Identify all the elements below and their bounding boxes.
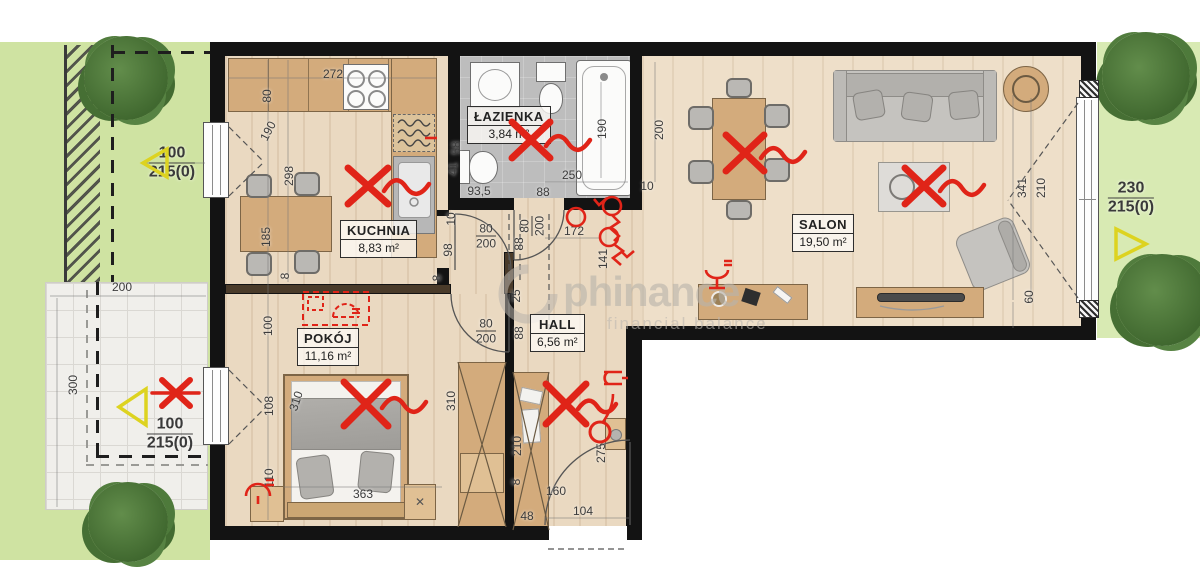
- room-area: 11,16 m²: [298, 348, 358, 365]
- insulation-hatch: [1079, 300, 1099, 318]
- wall-vestibule-stub: [437, 210, 449, 216]
- wall-bottom-stub: [630, 526, 642, 540]
- hanging-clothes: [521, 408, 541, 443]
- dining-table: [712, 98, 766, 200]
- nightstand-left: [250, 486, 284, 522]
- terrace-dashed-line-outer: [86, 464, 208, 466]
- kitchen-chair: [246, 174, 272, 198]
- bathtub-drain: [600, 73, 608, 81]
- wall-kitchen-bedroom: [225, 284, 451, 294]
- bathtub: [576, 60, 632, 196]
- dining-chair: [726, 78, 752, 98]
- room-label-kuchnia: KUCHNIA 8,83 m²: [340, 220, 417, 258]
- tree-mid-right: [1116, 254, 1200, 346]
- room-area: 8,83 m²: [341, 240, 416, 257]
- tree-bottom-left: [88, 482, 168, 562]
- tv-cabinet: [856, 287, 984, 318]
- dining-chair: [726, 200, 752, 220]
- wall-bedroom-hall: [505, 294, 514, 530]
- tree-top-left: [84, 36, 168, 120]
- sofa-pillow: [900, 91, 934, 123]
- wall-bath-right: [630, 56, 642, 210]
- terrace-dashed-line: [96, 455, 208, 458]
- bed-pillow: [357, 450, 395, 493]
- sofa-pillow: [948, 90, 981, 121]
- wall-bath-bottom-left: [448, 198, 514, 210]
- tv: [877, 293, 965, 302]
- wall-toilet-cistern: [536, 62, 566, 82]
- bathroom-vanity: [470, 62, 520, 108]
- dining-chair: [688, 106, 714, 130]
- hall-cabinet-knob: [610, 429, 622, 441]
- room-name: POKÓJ: [298, 329, 358, 348]
- bed-foot-bench: [287, 502, 405, 518]
- boundary-dashed-line: [111, 45, 114, 282]
- hanging-clothes: [519, 387, 543, 405]
- kitchen-chair: [246, 252, 272, 276]
- room-label-pokoj: POKÓJ 11,16 m²: [297, 328, 359, 366]
- wall-opening-stub: [504, 252, 514, 294]
- terrace-dashed-line-outer: [86, 290, 88, 462]
- hall-wardrobe: [513, 372, 549, 530]
- room-name: SALON: [793, 215, 853, 234]
- hall-cabinet: [605, 418, 626, 450]
- room-name: KUCHNIA: [341, 221, 416, 240]
- bedroom-window: [203, 367, 229, 445]
- room-area: 3,84 m²: [468, 126, 550, 143]
- floor-plan: ✕: [0, 0, 1200, 574]
- dining-chair: [764, 104, 790, 128]
- wall-bottom: [210, 526, 546, 540]
- wall-bath-left: [448, 56, 460, 198]
- kitchen-table: [240, 196, 332, 252]
- kitchen-chair: [294, 172, 320, 196]
- desk-remote: [773, 286, 793, 304]
- terrace-dashed-line: [96, 282, 99, 457]
- watermark-tagline: financial balance: [607, 314, 768, 334]
- bedroom-wardrobe: [458, 362, 506, 527]
- round-side-table: [1003, 66, 1049, 112]
- room-label-lazienka: ŁAZIENKA 3,84 m²: [467, 106, 551, 144]
- room-area: 19,50 m²: [793, 234, 853, 251]
- round-side-table-ring: [1012, 75, 1040, 103]
- nightstand-right: ✕: [404, 484, 436, 520]
- kitchen-heater: [393, 114, 435, 152]
- room-name: HALL: [531, 315, 584, 334]
- insulation-hatch: [1079, 80, 1099, 98]
- coffee-table: [878, 162, 950, 212]
- kitchen-chair: [294, 250, 320, 274]
- wall-left: [210, 42, 225, 540]
- bedroom-wardrobe-box: [460, 453, 504, 493]
- bed-blanket: [291, 398, 401, 450]
- terrace: [45, 282, 208, 510]
- sofa-pillow: [852, 89, 886, 122]
- entrance-door-opening: [546, 526, 630, 540]
- dining-chair: [764, 158, 790, 182]
- room-label-salon: SALON 19,50 m²: [792, 214, 854, 252]
- room-name: ŁAZIENKA: [468, 107, 550, 126]
- sofa: [833, 70, 997, 142]
- wall-vestibule-stub: [437, 268, 449, 284]
- wall-hall-right: [626, 340, 642, 526]
- watermark-brand: phinance: [563, 268, 739, 316]
- kitchen-window: [203, 122, 229, 198]
- coffee-table-bowl: [889, 174, 915, 200]
- tree-top-right: [1102, 32, 1190, 120]
- toilet-bowl: [469, 151, 498, 184]
- room-area: 6,56 m²: [531, 334, 584, 351]
- boundary-dashed-line: [112, 51, 210, 54]
- bed-pillow: [295, 454, 335, 500]
- sofa-armrest: [983, 71, 996, 141]
- washbasin: [478, 69, 512, 101]
- bathtub-inner: [582, 66, 626, 190]
- room-label-hall: HALL 6,56 m²: [530, 314, 585, 352]
- dining-chair: [688, 160, 714, 184]
- wall-top: [210, 42, 1096, 56]
- cooktop: [343, 64, 389, 110]
- sink-basin: [398, 162, 431, 218]
- desk-object: [741, 288, 761, 306]
- bed-frame: [283, 374, 409, 520]
- wall-bath-bottom-right: [564, 198, 642, 210]
- balcony-door: [1076, 97, 1099, 303]
- sofa-armrest: [834, 71, 847, 141]
